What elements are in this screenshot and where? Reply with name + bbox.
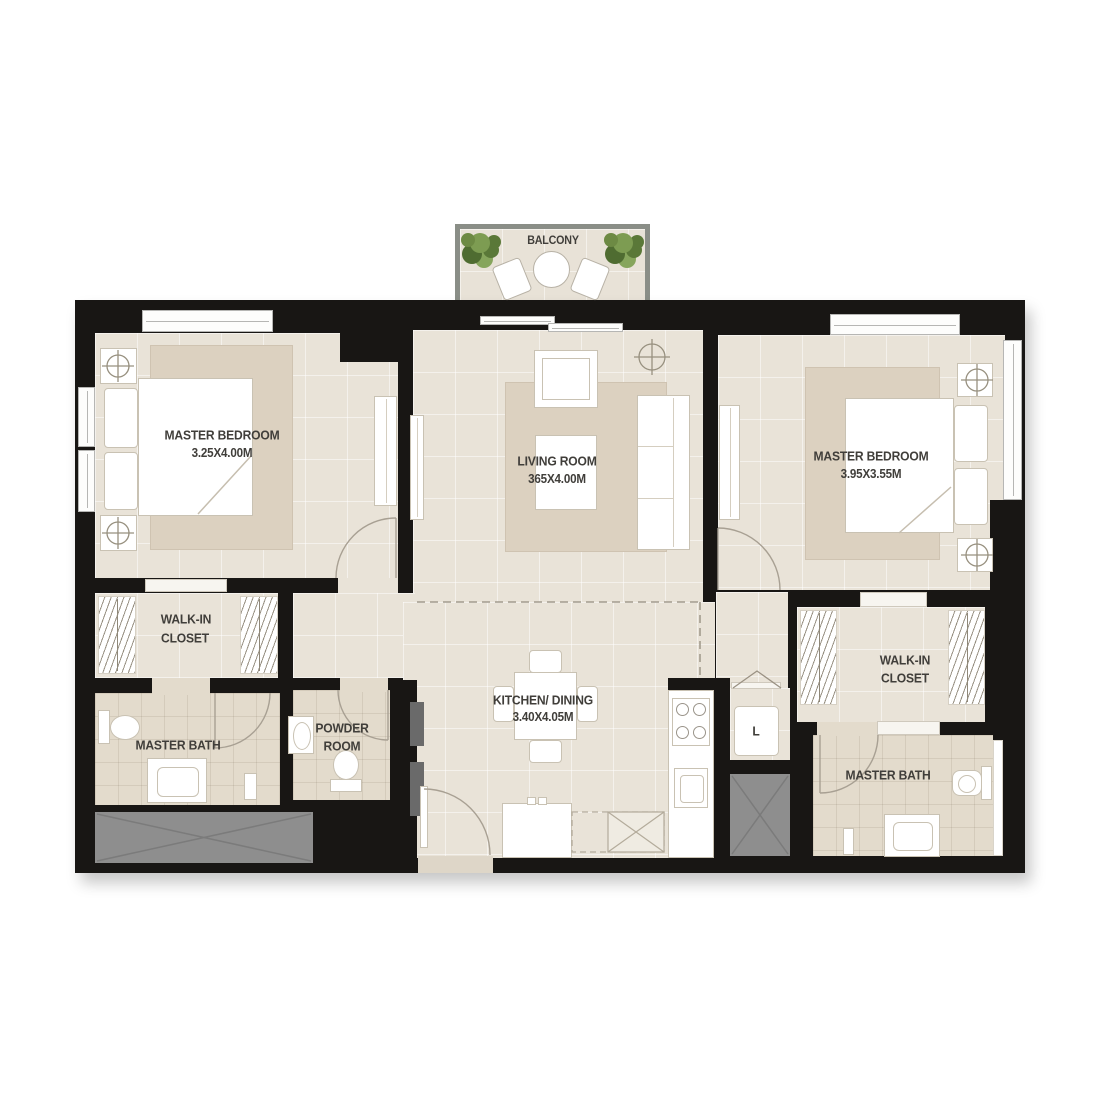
door-opening (152, 678, 210, 695)
window (78, 387, 95, 447)
tv-icon (542, 358, 590, 400)
balcony-plant-icon (604, 233, 618, 247)
dresser-icon (719, 405, 740, 520)
room-dims: 3.40X4.05M (513, 710, 574, 724)
vanity-sink-icon (884, 814, 940, 857)
window (830, 314, 960, 335)
closet-threshold (860, 592, 927, 607)
pillow-icon (104, 452, 138, 510)
room-label: MASTER BATH (845, 768, 930, 783)
kitchen-sink-icon (674, 768, 708, 808)
console-icon (410, 415, 424, 520)
floor-plan: BALCONY MASTER BEDROOM 3.25X4.00M LIVING… (0, 0, 1100, 1100)
shaft (730, 774, 790, 856)
room-label: KITCHEN/ DINING (493, 693, 593, 708)
room-label: ROOM (324, 739, 361, 754)
corridor (716, 592, 788, 688)
nightstand-icon (957, 363, 993, 397)
nightstand-icon (100, 348, 137, 384)
room-label: POWDER (315, 721, 368, 736)
room-dims: 3.95X3.55M (841, 467, 902, 481)
bifold-threshold (731, 682, 781, 689)
room-dims: 365X4.00M (528, 472, 586, 486)
toilet-icon (98, 710, 110, 744)
vanity-sink-icon (147, 758, 207, 803)
shaft (95, 812, 313, 863)
toilet-icon (330, 779, 362, 792)
pillow-icon (954, 405, 988, 462)
wall (714, 678, 730, 858)
balcony-table-icon (533, 251, 570, 288)
door-opening (817, 722, 877, 736)
room-label: MASTER BATH (135, 738, 220, 753)
closet-rail-icon (98, 596, 136, 674)
room-dims: 3.25X4.00M (192, 446, 253, 460)
room-label: MASTER BEDROOM (814, 449, 929, 464)
window (78, 450, 95, 512)
door-opening (340, 678, 388, 692)
wall (668, 678, 727, 690)
room-label: L (752, 724, 759, 739)
nightstand-icon (957, 538, 993, 572)
sink-faucet-icon (538, 797, 547, 805)
hallway (293, 593, 415, 678)
room-label: CLOSET (881, 671, 929, 686)
closet-rail-icon (948, 610, 985, 705)
pillow-icon (104, 388, 138, 448)
sofa-icon (637, 395, 690, 550)
toilet-icon (110, 715, 140, 740)
sliding-door (548, 323, 623, 332)
tall-unit-icon (410, 702, 424, 746)
door-opening (338, 578, 398, 593)
window (142, 310, 273, 332)
room-label: LIVING ROOM (517, 454, 596, 469)
shower-glass (993, 740, 1003, 856)
closet-threshold (145, 579, 227, 592)
toilet-icon (333, 750, 359, 780)
room-label: MASTER BEDROOM (165, 428, 280, 443)
sink-faucet-icon (527, 797, 536, 805)
bed-icon (845, 398, 954, 533)
nightstand-icon (100, 515, 137, 551)
bath-fixture-icon (843, 828, 854, 855)
closet-threshold (877, 721, 940, 735)
chair-icon (529, 740, 562, 763)
bath-fixture-icon (244, 773, 257, 800)
balcony-label: BALCONY (527, 235, 579, 247)
room-label: WALK-IN (161, 612, 211, 627)
sliding-door (480, 316, 555, 325)
closet-rail-icon (800, 610, 837, 705)
toilet-icon (952, 770, 982, 796)
room-label: WALK-IN (880, 653, 930, 668)
toilet-icon (981, 766, 992, 800)
balcony-plant-icon (461, 233, 475, 247)
pillow-icon (954, 468, 988, 525)
wardrobe-icon (374, 396, 397, 506)
chair-icon (529, 650, 562, 673)
wall (340, 300, 413, 362)
entry-door-leaf (420, 786, 428, 848)
powder-sink-icon (288, 716, 314, 754)
stove-icon (672, 698, 710, 746)
entry-threshold (418, 856, 493, 873)
room-label: CLOSET (161, 631, 209, 646)
window (1003, 340, 1022, 500)
base-cabinet (502, 803, 572, 858)
closet-rail-icon (240, 596, 278, 674)
